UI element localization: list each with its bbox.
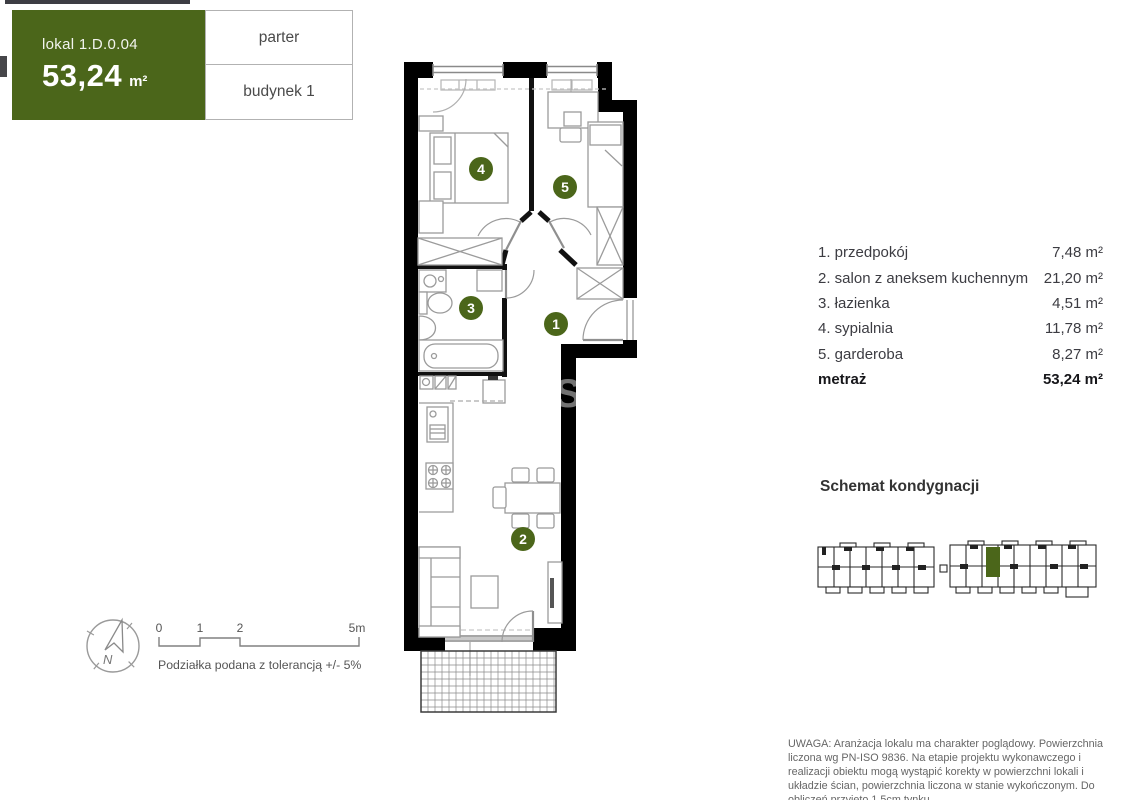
building-left	[818, 543, 947, 593]
unit-info-card: lokal 1.D.0.04 53,24 m²	[12, 10, 205, 120]
room-number-3: 3	[467, 300, 475, 316]
bathroom-fixtures	[419, 270, 503, 371]
room-number-4: 4	[477, 161, 485, 177]
legend-row: 2. salon z aneksem kuchennym 21,20 m²	[818, 265, 1103, 290]
room-number-1: 1	[552, 316, 560, 332]
room-area: 21,20 m²	[1044, 270, 1103, 287]
screenshot-artifact-tab	[0, 56, 7, 77]
floor-plan: S 1 2 3 4 5	[395, 50, 645, 725]
room-number-5: 5	[561, 179, 569, 195]
scale-bar: 0 1 2 5m	[150, 620, 380, 652]
room-name: 1. przedpokój	[818, 244, 908, 261]
scale-label-1: 1	[197, 621, 204, 635]
watermark-letter: S	[555, 372, 582, 416]
room-name: 5. garderoba	[818, 346, 903, 363]
floor-box: parter	[205, 10, 353, 65]
north-label: N	[103, 652, 113, 667]
disclaimer-text: UWAGA: Aranżacja lokalu ma charakter pog…	[788, 737, 1118, 800]
highlighted-unit	[986, 547, 1000, 577]
scale-bar-line	[159, 637, 359, 646]
building-right	[950, 541, 1096, 597]
floor-label: parter	[259, 29, 300, 47]
total-area: 53,24 m²	[1043, 371, 1103, 388]
room-legend: 1. przedpokój 7,48 m² 2. salon z aneksem…	[818, 240, 1103, 392]
bedroom-furniture	[418, 116, 508, 265]
floor-schematic-title: Schemat kondygnacji	[820, 478, 979, 496]
room-number-2: 2	[519, 531, 527, 547]
building-label: budynek 1	[243, 83, 315, 101]
total-label: metraż	[818, 371, 866, 388]
compass: N	[85, 614, 145, 682]
screenshot-artifact-strip	[5, 0, 190, 4]
legend-row: 1. przedpokój 7,48 m²	[818, 240, 1103, 265]
building-box: budynek 1	[205, 64, 353, 120]
room-area: 4,51 m²	[1052, 295, 1103, 312]
floor-schematic-map	[816, 533, 1102, 611]
unit-label: lokal 1.D.0.04	[42, 36, 205, 53]
room-area: 7,48 m²	[1052, 244, 1103, 261]
room-name: 3. łazienka	[818, 295, 890, 312]
room-name: 2. salon z aneksem kuchennym	[818, 270, 1028, 287]
living-room-furniture	[419, 547, 562, 637]
compass-needle	[105, 620, 123, 652]
unit-area-value: 53,24	[42, 58, 122, 94]
legend-row: 5. garderoba 8,27 m²	[818, 342, 1103, 367]
legend-row: 3. łazienka 4,51 m²	[818, 291, 1103, 316]
unit-area: 53,24 m²	[42, 58, 205, 94]
room-name: 4. sypialnia	[818, 320, 893, 337]
scale-label-5m: 5m	[349, 621, 366, 635]
terrace	[421, 651, 556, 712]
room-area: 8,27 m²	[1052, 346, 1103, 363]
legend-row: 4. sypialnia 11,78 m²	[818, 316, 1103, 341]
floor-plan-page: { "header": { "unit_label": "lokal 1.D.0…	[0, 0, 1142, 800]
kitchen-furniture	[419, 376, 505, 512]
dining-set	[493, 468, 560, 528]
room-area: 11,78 m²	[1045, 320, 1103, 337]
unit-area-unit: m²	[129, 73, 147, 90]
scale-label-0: 0	[156, 621, 163, 635]
scale-label-2: 2	[237, 621, 244, 635]
scale-caption: Podziałka podana z tolerancją +/- 5%	[158, 658, 361, 672]
legend-total-row: metraż 53,24 m²	[818, 367, 1103, 392]
